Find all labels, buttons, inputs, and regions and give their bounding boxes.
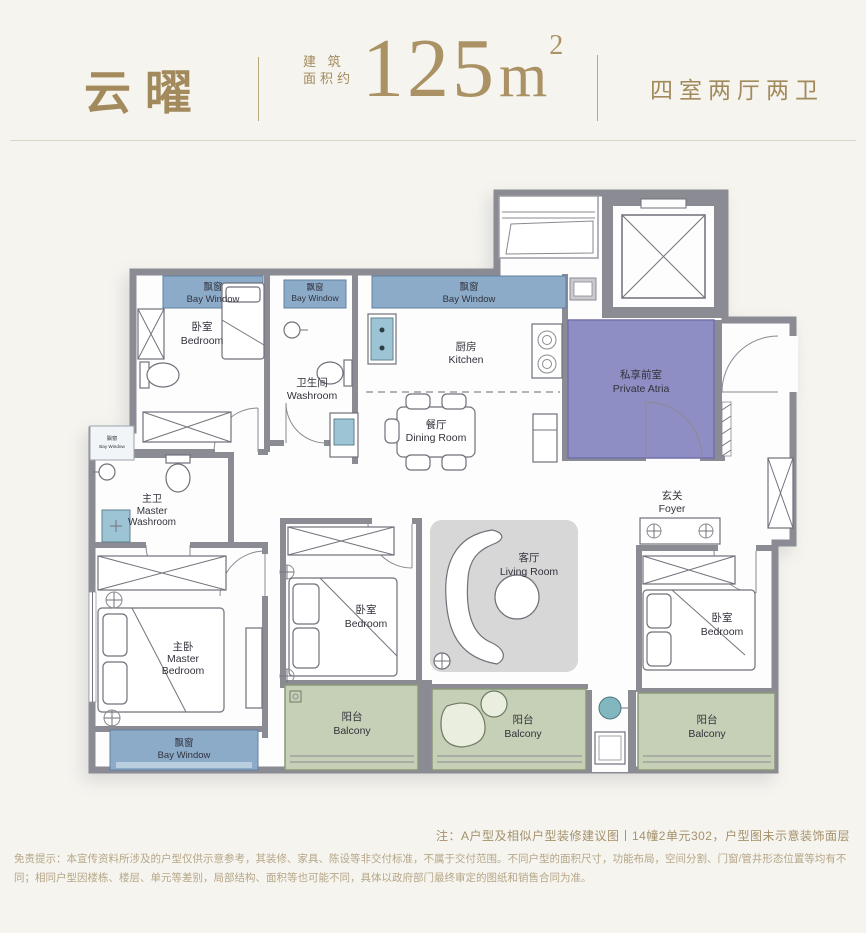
vestibule-window <box>570 278 596 300</box>
floor-lamp-icon <box>434 653 450 669</box>
master-washroom-label-zh: 主卫 <box>142 493 162 505</box>
chair-icon <box>406 394 430 409</box>
bay-window-3-label-en: Bay Window <box>443 294 496 305</box>
kitchen-label-en: Kitchen <box>448 354 483 366</box>
master-bedroom-label-en2: Bedroom <box>162 665 205 677</box>
bench-icon <box>246 628 262 708</box>
balcony-right-label-zh: 阳台 <box>697 713 718 726</box>
washroom-label-en: Washroom <box>287 390 338 402</box>
bay-window-2-label-zh: 飘窗 <box>306 282 323 292</box>
bay-window-1-label-zh: 飘窗 <box>203 281 222 293</box>
balcony-left-label-zh: 阳台 <box>342 710 363 723</box>
master-bedroom-label-zh: 主卧 <box>173 640 194 653</box>
coffee-table-icon <box>495 575 539 619</box>
chair-icon <box>442 394 466 409</box>
dining-room-label-zh: 餐厅 <box>426 418 447 431</box>
living-room-label-zh: 客厅 <box>519 551 540 564</box>
bay-window-1-label-en: Bay Window <box>187 294 240 305</box>
dining-room-label-en: Dining Room <box>406 432 467 444</box>
window-slot <box>89 592 96 702</box>
chair-icon <box>442 455 466 470</box>
elevator-shaft <box>602 195 725 318</box>
shower-icon <box>102 510 130 542</box>
toilet-icon <box>140 362 179 388</box>
laundry-niche <box>592 690 628 772</box>
bed-icon <box>98 608 224 712</box>
master-washroom-label-en2: Washroom <box>128 517 176 528</box>
kitchen-sink-icon <box>368 314 396 364</box>
bay-window-bottom-sill <box>116 762 252 768</box>
bay-window-bottom-label-zh: 飘窗 <box>174 737 193 749</box>
floorplan-drawing: 飘窗 Bay Window 卧室 Bedroom 飘窗 Bay Window 卫… <box>0 0 866 933</box>
living-room-label-en: Living Room <box>500 566 559 578</box>
private-atria-label-zh: 私享前室 <box>620 368 662 381</box>
bay-window-side-zone <box>90 426 134 460</box>
bay-window-side-label-en: Bay Window <box>99 444 125 449</box>
bay-window-3-label-zh: 飘窗 <box>459 281 478 293</box>
bay-window-2-label-en: Bay Window <box>291 293 339 303</box>
bedroom-mid-label-zh: 卧室 <box>356 603 377 616</box>
disclaimer-text: 免责提示：本宣传资料所涉及的户型仅供示意参考，其装修、家具、陈设等非交付标准，不… <box>14 850 852 888</box>
bedroom-top-label-zh: 卧室 <box>192 320 213 333</box>
side-table-icon <box>481 691 507 717</box>
chair-icon <box>406 455 430 470</box>
plan-note: 注：A户型及相似户型装修建议图丨14幢2单元302，户型图未示意装饰面层 <box>436 827 850 844</box>
stairwell <box>499 196 598 258</box>
master-bedroom-label-en1: Master <box>167 653 200 665</box>
bay-window-bottom-label-en: Bay Window <box>158 750 211 761</box>
chair-icon <box>385 419 399 443</box>
washroom-label-zh: 卫生间 <box>296 376 328 389</box>
entry-opening <box>789 336 798 392</box>
foyer-label-en: Foyer <box>659 503 686 515</box>
vanity-icon <box>330 413 358 457</box>
bay-window-side-label-zh: 飘窗 <box>107 434 117 442</box>
bedroom-right-label-zh: 卧室 <box>712 611 733 624</box>
private-atria-label-en: Private Atria <box>613 383 670 395</box>
kitchen-label-zh: 厨房 <box>456 340 477 353</box>
foyer-closet <box>768 458 793 528</box>
bedroom-mid-furniture <box>280 527 397 683</box>
lounge-chair-icon <box>441 703 485 747</box>
stove-icon <box>532 324 562 378</box>
washing-machine-icon <box>595 732 625 764</box>
bedroom-right-label-en: Bedroom <box>701 626 744 638</box>
toilet-icon <box>166 455 190 492</box>
balcony-mid-label-en: Balcony <box>504 728 542 740</box>
master-washroom-label-en1: Master <box>137 506 168 517</box>
laundry-basin-icon <box>599 697 621 719</box>
balcony-left-label-en: Balcony <box>333 725 371 737</box>
balcony-right-label-en: Balcony <box>688 728 726 740</box>
fridge-icon <box>533 414 557 462</box>
foyer-label-zh: 玄关 <box>662 489 683 502</box>
bedroom-mid-label-en: Bedroom <box>345 618 388 630</box>
floorplan-page: { "header": { "project_name": "云曜", "are… <box>0 0 866 933</box>
balcony-mid-label-zh: 阳台 <box>513 713 534 726</box>
pipe-shaft <box>722 402 731 456</box>
bedroom-top-label-en: Bedroom <box>181 335 224 347</box>
